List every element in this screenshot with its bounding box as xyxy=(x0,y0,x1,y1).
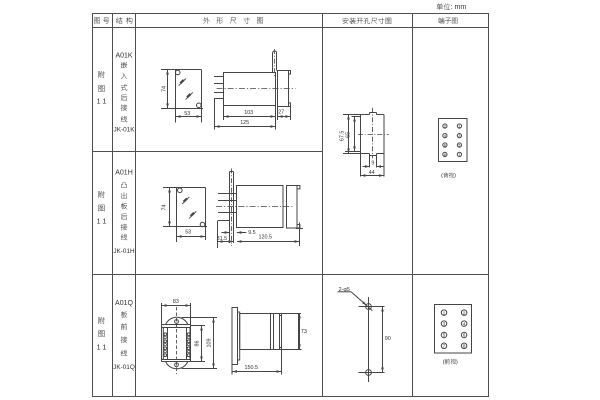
svg-text:): ) xyxy=(456,360,458,366)
svg-text:86: 86 xyxy=(195,341,201,347)
svg-text:(: ( xyxy=(443,360,445,366)
svg-text:53: 53 xyxy=(185,230,191,236)
svg-text:2: 2 xyxy=(463,310,466,316)
svg-text:74: 74 xyxy=(162,205,168,211)
svg-text:73: 73 xyxy=(301,329,307,335)
svg-text:6: 6 xyxy=(463,333,466,339)
svg-text:: mm: : mm xyxy=(451,4,467,11)
svg-text:5: 5 xyxy=(443,333,446,339)
svg-text:1 1: 1 1 xyxy=(97,99,107,106)
svg-text:103: 103 xyxy=(244,110,253,116)
svg-text:65: 65 xyxy=(346,132,352,138)
svg-text:109: 109 xyxy=(207,339,213,348)
svg-text:JK-01H: JK-01H xyxy=(113,248,135,255)
svg-text:125: 125 xyxy=(240,120,249,126)
svg-text:8: 8 xyxy=(463,344,466,350)
svg-text:(: ( xyxy=(441,173,443,179)
svg-text:JK-01Q: JK-01Q xyxy=(113,364,135,371)
svg-text:44: 44 xyxy=(369,170,375,176)
svg-text:74: 74 xyxy=(162,86,168,92)
svg-text:A01Q: A01Q xyxy=(115,300,133,307)
svg-text:1: 1 xyxy=(443,310,446,316)
svg-text:7: 7 xyxy=(443,344,446,350)
svg-text:31.5: 31.5 xyxy=(217,236,228,242)
svg-text:A01K: A01K xyxy=(115,53,132,60)
svg-text:90: 90 xyxy=(385,336,391,342)
svg-text:3: 3 xyxy=(443,321,446,327)
svg-text:2-φ5: 2-φ5 xyxy=(339,287,350,293)
svg-text:83: 83 xyxy=(173,299,179,305)
svg-text:1 1: 1 1 xyxy=(97,219,107,226)
svg-text:120.5: 120.5 xyxy=(259,235,273,241)
svg-text:150.5: 150.5 xyxy=(245,365,259,371)
svg-text:9.5: 9.5 xyxy=(248,230,256,236)
svg-text:JK-01K: JK-01K xyxy=(114,127,136,134)
svg-text:): ) xyxy=(454,173,456,179)
svg-text:9: 9 xyxy=(371,161,374,167)
svg-text:27: 27 xyxy=(278,110,284,116)
svg-text:4: 4 xyxy=(463,321,466,327)
svg-text:A01H: A01H xyxy=(115,170,133,177)
svg-text:53: 53 xyxy=(184,111,190,117)
svg-text:1 1: 1 1 xyxy=(97,345,107,352)
